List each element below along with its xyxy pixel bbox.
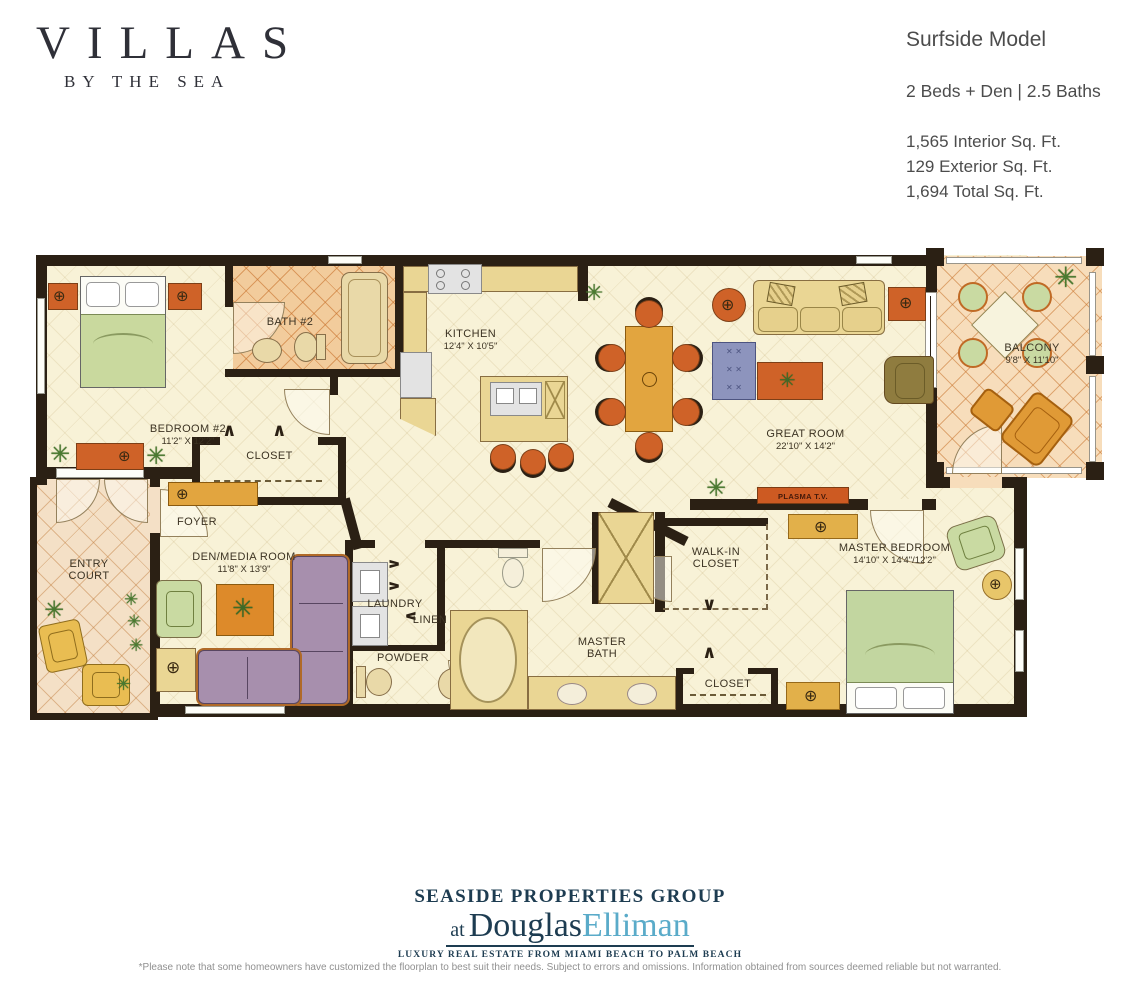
plant-icon: ✳	[124, 592, 138, 609]
bifold-chevron-icon: ∧	[387, 558, 403, 571]
plant-icon: ✳	[127, 614, 141, 631]
dryer	[352, 606, 388, 646]
sofa	[753, 280, 885, 335]
dining-chair	[635, 300, 663, 328]
fixture-icon: ⊕	[899, 295, 912, 311]
window	[1015, 630, 1024, 672]
room-name: BEDROOM #2	[118, 423, 258, 435]
room-name: WALK-IN CLOSET	[672, 546, 760, 570]
plasma-tv: PLASMA T.V.	[757, 487, 849, 504]
room-label-laundry: LAUNDRY	[355, 598, 435, 610]
patio-chair	[958, 282, 988, 312]
vanity	[528, 676, 676, 710]
dining-chair	[672, 344, 700, 372]
room-label-great-room: GREAT ROOM 22'10" X 14'2"	[738, 428, 873, 452]
footer-brand: at DouglasElliman	[446, 908, 693, 947]
wall	[345, 540, 375, 548]
sofa-seam	[299, 603, 343, 604]
balcony-post	[1086, 356, 1104, 374]
sink-basin	[519, 388, 537, 404]
wall	[30, 477, 37, 720]
dining-chair	[635, 432, 663, 460]
wall	[225, 369, 403, 377]
room-label-kitchen: KITCHEN 12'4" X 10'5"	[408, 328, 533, 352]
room-label-powder: POWDER	[364, 652, 442, 664]
room-dims: 11'2" X 12'2"	[118, 436, 258, 447]
toilet	[502, 558, 524, 588]
sofa-seam	[299, 651, 343, 652]
fixture-icon: ⊕	[814, 519, 827, 535]
vanity-sink	[627, 683, 657, 705]
wall	[676, 668, 694, 674]
room-label-balcony: BALCONY 9'8" X 11'10"	[982, 342, 1082, 366]
bifold-chevron-icon: ∨	[702, 596, 717, 614]
plant-icon: ✳	[232, 596, 254, 622]
sofa-cushion	[800, 307, 840, 332]
window	[856, 256, 892, 264]
blanket-fold	[93, 333, 153, 355]
stove	[428, 264, 482, 294]
fixture-icon: ⊕	[176, 487, 189, 502]
room-label-closet-bed2: CLOSET	[212, 450, 327, 462]
dining-chair	[598, 344, 626, 372]
door-opening	[150, 487, 160, 533]
sofa-seam	[247, 657, 248, 699]
fixture-icon: ⊕	[118, 449, 131, 464]
washer	[352, 562, 388, 602]
wall	[676, 706, 778, 712]
closet-shelf-line	[214, 480, 322, 482]
powder-toilet-tank	[356, 666, 366, 698]
blanket	[81, 314, 165, 387]
sqft-stats: 1,565 Interior Sq. Ft. 129 Exterior Sq. …	[906, 129, 1101, 204]
wall	[330, 369, 338, 395]
burner	[436, 269, 445, 278]
bifold-chevron-icon: ∧	[702, 644, 717, 662]
closet-shelf-line	[690, 694, 766, 696]
kitchen-island	[480, 376, 568, 442]
dining-chair	[598, 398, 626, 426]
room-name: LAUNDRY	[355, 598, 435, 610]
window	[1015, 548, 1024, 600]
model-name: Surfside Model	[906, 28, 1101, 52]
balcony-post	[1086, 248, 1104, 266]
tub-surround	[450, 610, 528, 710]
wall	[445, 540, 540, 548]
wall	[36, 255, 937, 266]
room-label-bedroom2: BEDROOM #2 11'2" X 12'2"	[118, 423, 258, 447]
bar-stool	[520, 449, 546, 475]
bar-stool	[548, 443, 574, 469]
room-label-linen: LINEN	[402, 614, 458, 626]
bifold-chevron-icon: ∧	[272, 422, 287, 440]
sink-basin	[496, 388, 514, 404]
bathtub-inner	[348, 279, 381, 357]
fixture-icon: ⊕	[989, 577, 1002, 592]
pillow	[903, 687, 945, 709]
bifold-chevron-icon: ∧	[387, 580, 403, 593]
fixture-icon: ⊕	[166, 660, 180, 677]
island-sink	[490, 382, 542, 416]
footer-logo: SEASIDE PROPERTIES GROUP at DouglasEllim…	[0, 886, 1140, 960]
sofa-cushion	[758, 307, 798, 332]
sectional-sofa	[292, 556, 348, 704]
interior-sqft: 1,565 Interior Sq. Ft.	[906, 129, 1101, 154]
burner	[461, 269, 470, 278]
door-opening	[950, 477, 1002, 488]
toilet-tank	[498, 548, 528, 558]
beds-baths: 2 Beds + Den | 2.5 Baths	[906, 81, 1101, 102]
wall	[338, 437, 346, 505]
master-bed	[846, 590, 954, 714]
burner	[461, 281, 470, 290]
brand-name: VILLAS	[36, 16, 305, 70]
dryer-door	[360, 614, 380, 638]
plant-icon: ✳	[779, 370, 796, 390]
fixture-icon: ⊕	[721, 297, 734, 313]
bathtub	[341, 272, 388, 364]
room-dims: 22'10" X 14'2"	[738, 441, 873, 452]
room-dims: 11'8" X 13'9"	[158, 564, 330, 575]
door-opening	[868, 499, 922, 510]
room-label-den: DEN/MEDIA ROOM 11'8" X 13'9"	[158, 551, 330, 575]
balcony-rail	[1089, 376, 1096, 462]
window	[328, 256, 362, 264]
pillow	[855, 687, 897, 709]
dresser	[76, 443, 144, 470]
plant-icon: ✳	[129, 638, 143, 655]
balcony-post	[1086, 462, 1104, 480]
room-name: MASTER BATH	[562, 636, 642, 660]
dining-table	[625, 326, 673, 432]
plant-icon: ✳	[1054, 264, 1077, 292]
room-name: POWDER	[364, 652, 442, 664]
fixture-icon: ⊕	[804, 688, 817, 704]
room-dims: 14'10" X 14'4"/12'2"	[832, 555, 957, 566]
brand-subtitle: BY THE SEA	[36, 72, 305, 92]
fixture-icon: ⊕	[176, 289, 189, 304]
room-name: KITCHEN	[408, 328, 533, 340]
pillow	[86, 282, 120, 307]
room-name: BALCONY	[982, 342, 1082, 354]
fixture-icon: ⊕	[53, 289, 66, 304]
page: VILLAS BY THE SEA Surfside Model 2 Beds …	[0, 0, 1140, 986]
tub	[459, 617, 517, 703]
vanity-sink	[557, 683, 587, 705]
disclaimer-text: *Please note that some homeowners have c…	[0, 962, 1140, 973]
dining-chair	[672, 398, 700, 426]
sectional-sofa	[198, 650, 300, 704]
room-label-foyer: FOYER	[164, 516, 230, 528]
plant-icon: ✳	[50, 442, 70, 466]
wall	[318, 437, 346, 445]
room-dims: 9'8" X 11'10"	[982, 355, 1082, 366]
room-name: CLOSET	[212, 450, 327, 462]
bench: ✕ ✕✕ ✕✕ ✕	[712, 342, 756, 400]
wall	[225, 255, 233, 307]
plasma-tv-label: PLASMA T.V.	[758, 492, 848, 501]
chair-pillow	[166, 591, 194, 627]
total-sqft: 1,694 Total Sq. Ft.	[906, 179, 1101, 204]
room-name: BATH #2	[250, 316, 330, 328]
balcony-post	[926, 248, 944, 266]
chair-pillow	[957, 524, 996, 561]
sofa-pillow	[838, 282, 867, 306]
pillow	[125, 282, 159, 307]
room-label-closet-master: CLOSET	[690, 678, 766, 690]
toilet	[294, 332, 318, 362]
plant-icon: ✳	[44, 598, 64, 622]
room-dims: 12'4" X 10'5"	[408, 341, 533, 352]
brand-logo: VILLAS BY THE SEA	[36, 16, 305, 92]
room-label-bath2: BATH #2	[250, 316, 330, 328]
room-label-master-bath: MASTER BATH	[562, 636, 642, 660]
powder-toilet	[366, 668, 392, 696]
bed	[80, 276, 166, 388]
table-center	[642, 372, 657, 387]
room-label-entry-court: ENTRY COURT	[52, 558, 126, 582]
wall	[748, 668, 778, 674]
plant-icon: ✳	[706, 476, 726, 500]
plant-icon: ✳	[146, 444, 166, 468]
model-info: Surfside Model 2 Beds + Den | 2.5 Baths …	[906, 28, 1101, 204]
chair-cushion	[47, 629, 79, 664]
armchair	[884, 356, 934, 404]
room-name: GREAT ROOM	[738, 428, 873, 440]
burner	[436, 281, 445, 290]
washer-door	[360, 570, 380, 594]
room-name: DEN/MEDIA ROOM	[158, 551, 330, 563]
bar-stool	[490, 444, 516, 470]
room-name: FOYER	[164, 516, 230, 528]
sofa-pillow	[766, 282, 795, 306]
room-name: MASTER BEDROOM	[832, 542, 957, 554]
blanket	[847, 591, 953, 683]
exterior-sqft: 129 Exterior Sq. Ft.	[906, 154, 1101, 179]
window	[37, 298, 45, 394]
footer-brand-douglas: Douglas	[469, 907, 582, 944]
island-board	[545, 381, 565, 419]
sofa-cushion	[842, 307, 882, 332]
plant-icon: ✳	[116, 676, 131, 694]
room-name: LINEN	[402, 614, 458, 626]
room-name: CLOSET	[690, 678, 766, 690]
room-label-walkin-closet: WALK-IN CLOSET	[672, 546, 760, 570]
den-armchair	[156, 580, 202, 638]
patio-chair	[1022, 282, 1052, 312]
footer-tagline: LUXURY REAL ESTATE FROM MIAMI BEACH TO P…	[0, 950, 1140, 960]
balcony-post	[926, 462, 944, 480]
footer-brand-elliman: Elliman	[582, 907, 690, 944]
room-name: ENTRY COURT	[52, 558, 126, 582]
wall	[30, 713, 158, 720]
wall	[437, 540, 445, 650]
armchair-seam	[895, 363, 925, 399]
plant-icon: ✳	[585, 283, 603, 305]
footer-at: at	[450, 919, 464, 941]
refrigerator	[400, 352, 432, 398]
room-label-master-bedroom: MASTER BEDROOM 14'10" X 14'4"/12'2"	[832, 542, 957, 566]
balcony-rail	[1089, 272, 1096, 356]
toilet-tank	[316, 334, 326, 360]
footer-group-name: SEASIDE PROPERTIES GROUP	[0, 886, 1140, 908]
shower	[598, 512, 654, 604]
sink	[252, 338, 282, 363]
blanket-fold	[865, 643, 935, 667]
window	[185, 706, 285, 714]
